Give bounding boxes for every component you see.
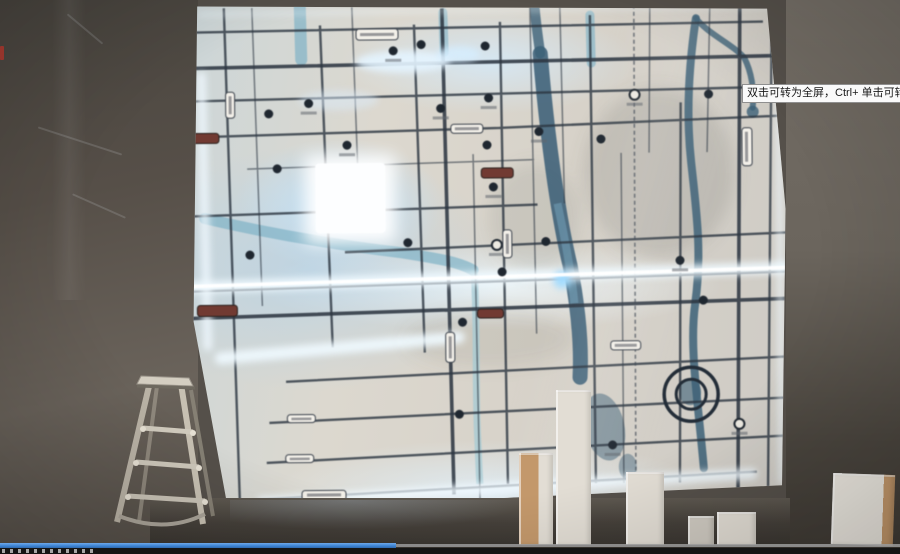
- video-controls-strip[interactable]: [0, 548, 900, 554]
- model-block-small-2: [688, 516, 714, 545]
- map-rivers-layer: [203, 4, 762, 486]
- map-roads-layer: [190, 4, 788, 512]
- ladder-brace: [119, 514, 205, 525]
- map-shadow-patches: [404, 87, 736, 368]
- video-frame: 双击可转为全屏，Ctrl+ 单击可转为: [0, 0, 900, 554]
- model-block-mid: [626, 472, 664, 545]
- model-block-tan: [519, 453, 553, 545]
- floor-reflection: [230, 500, 530, 530]
- ladder-frame: [117, 376, 213, 525]
- model-block-tall: [556, 390, 591, 545]
- bright-light-square: [305, 155, 396, 244]
- illuminated-map-panel: [190, 4, 788, 516]
- red-edge-mark: [0, 46, 4, 60]
- fullscreen-tooltip-text: 双击可转为全屏，Ctrl+ 单击可转为: [747, 87, 900, 99]
- ladder-top-platform: [137, 376, 193, 386]
- model-block-small: [717, 512, 756, 545]
- map-led-glow-layer: [190, 5, 788, 502]
- video-controls-glyphs: [2, 549, 98, 553]
- fullscreen-tooltip: 双击可转为全屏，Ctrl+ 单击可转为: [742, 84, 900, 103]
- map-road-labels: [191, 26, 755, 502]
- step-ladder: [105, 336, 223, 532]
- wall-light-band: [52, 0, 86, 300]
- ring-interchange: [664, 367, 718, 421]
- model-block-right: [831, 473, 895, 546]
- map-poi-markers: [244, 37, 748, 459]
